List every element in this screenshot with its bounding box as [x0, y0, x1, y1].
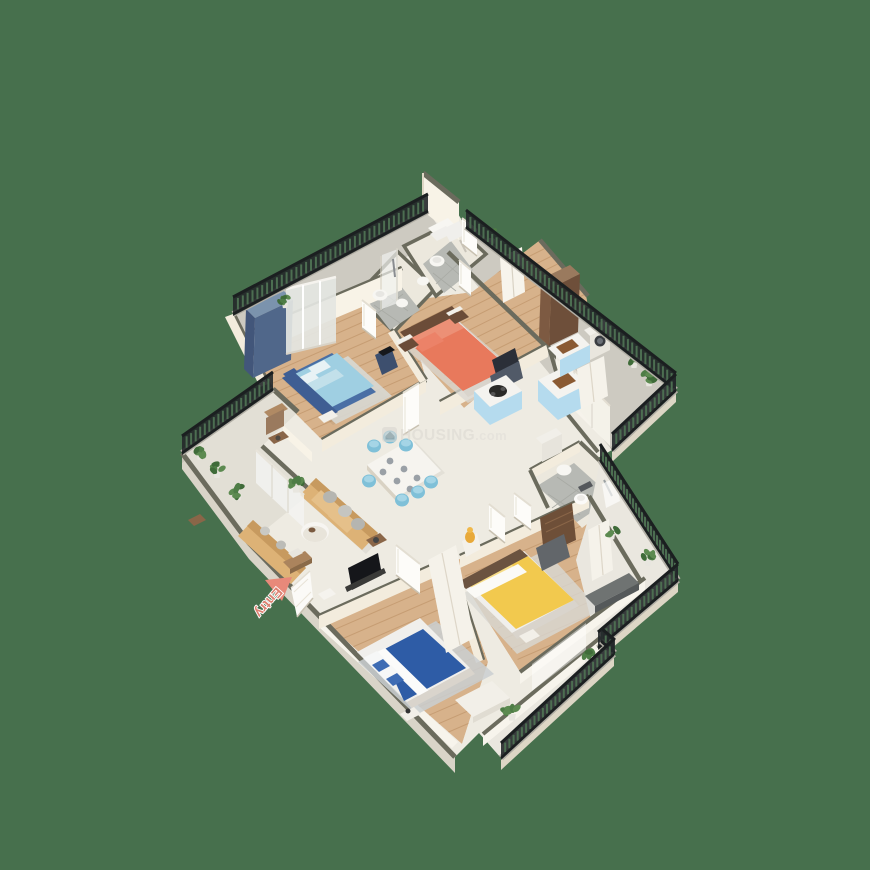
svg-text:HOUSING.com: HOUSING.com — [400, 427, 507, 444]
